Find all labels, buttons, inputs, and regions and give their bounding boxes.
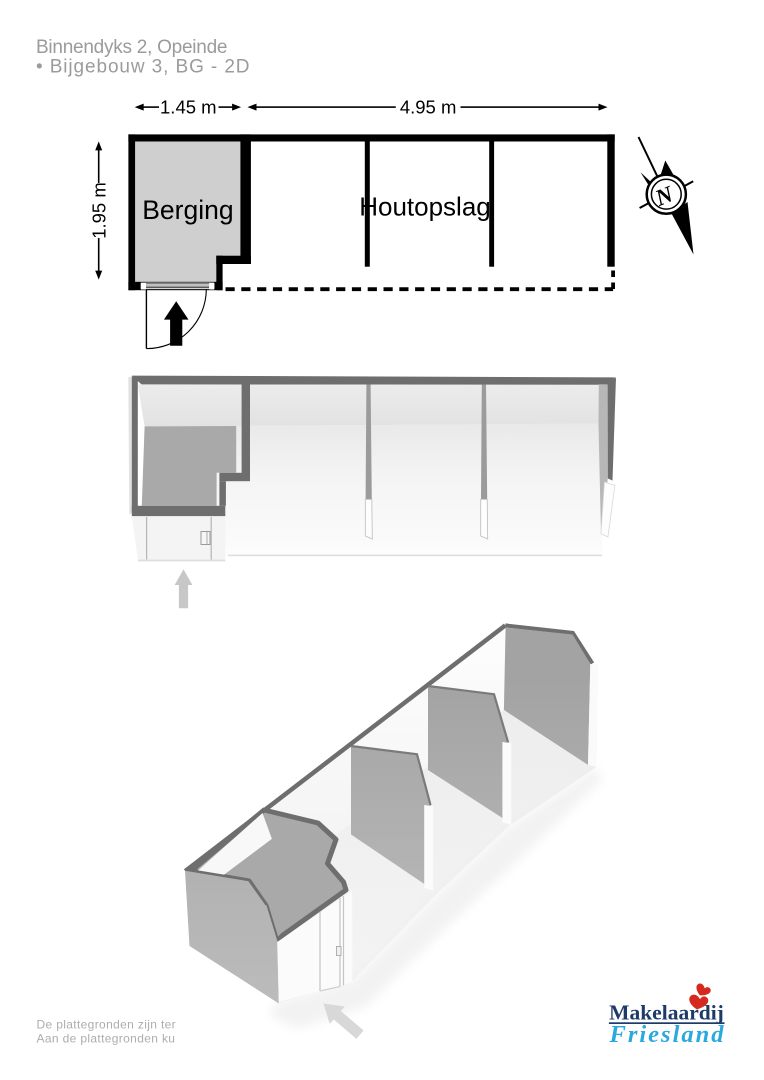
- svg-text:Houtopslag: Houtopslag: [359, 192, 491, 222]
- svg-text:4.95 m: 4.95 m: [400, 97, 457, 118]
- svg-text:Binnendyks 2, Opeinde: Binnendyks 2, Opeinde: [36, 37, 227, 58]
- svg-text:Aan de plattegronden ku: Aan de plattegronden ku: [37, 1031, 176, 1045]
- svg-text:1.95 m: 1.95 m: [88, 182, 109, 239]
- svg-text:Berging: Berging: [142, 195, 233, 225]
- svg-text:• Bijgebouw 3, BG - 2D: • Bijgebouw 3, BG - 2D: [36, 57, 250, 78]
- svg-text:Friesland: Friesland: [608, 1021, 725, 1048]
- svg-text:De plattegronden zijn ter: De plattegronden zijn ter: [37, 1017, 177, 1031]
- svg-text:1.45 m: 1.45 m: [160, 97, 217, 118]
